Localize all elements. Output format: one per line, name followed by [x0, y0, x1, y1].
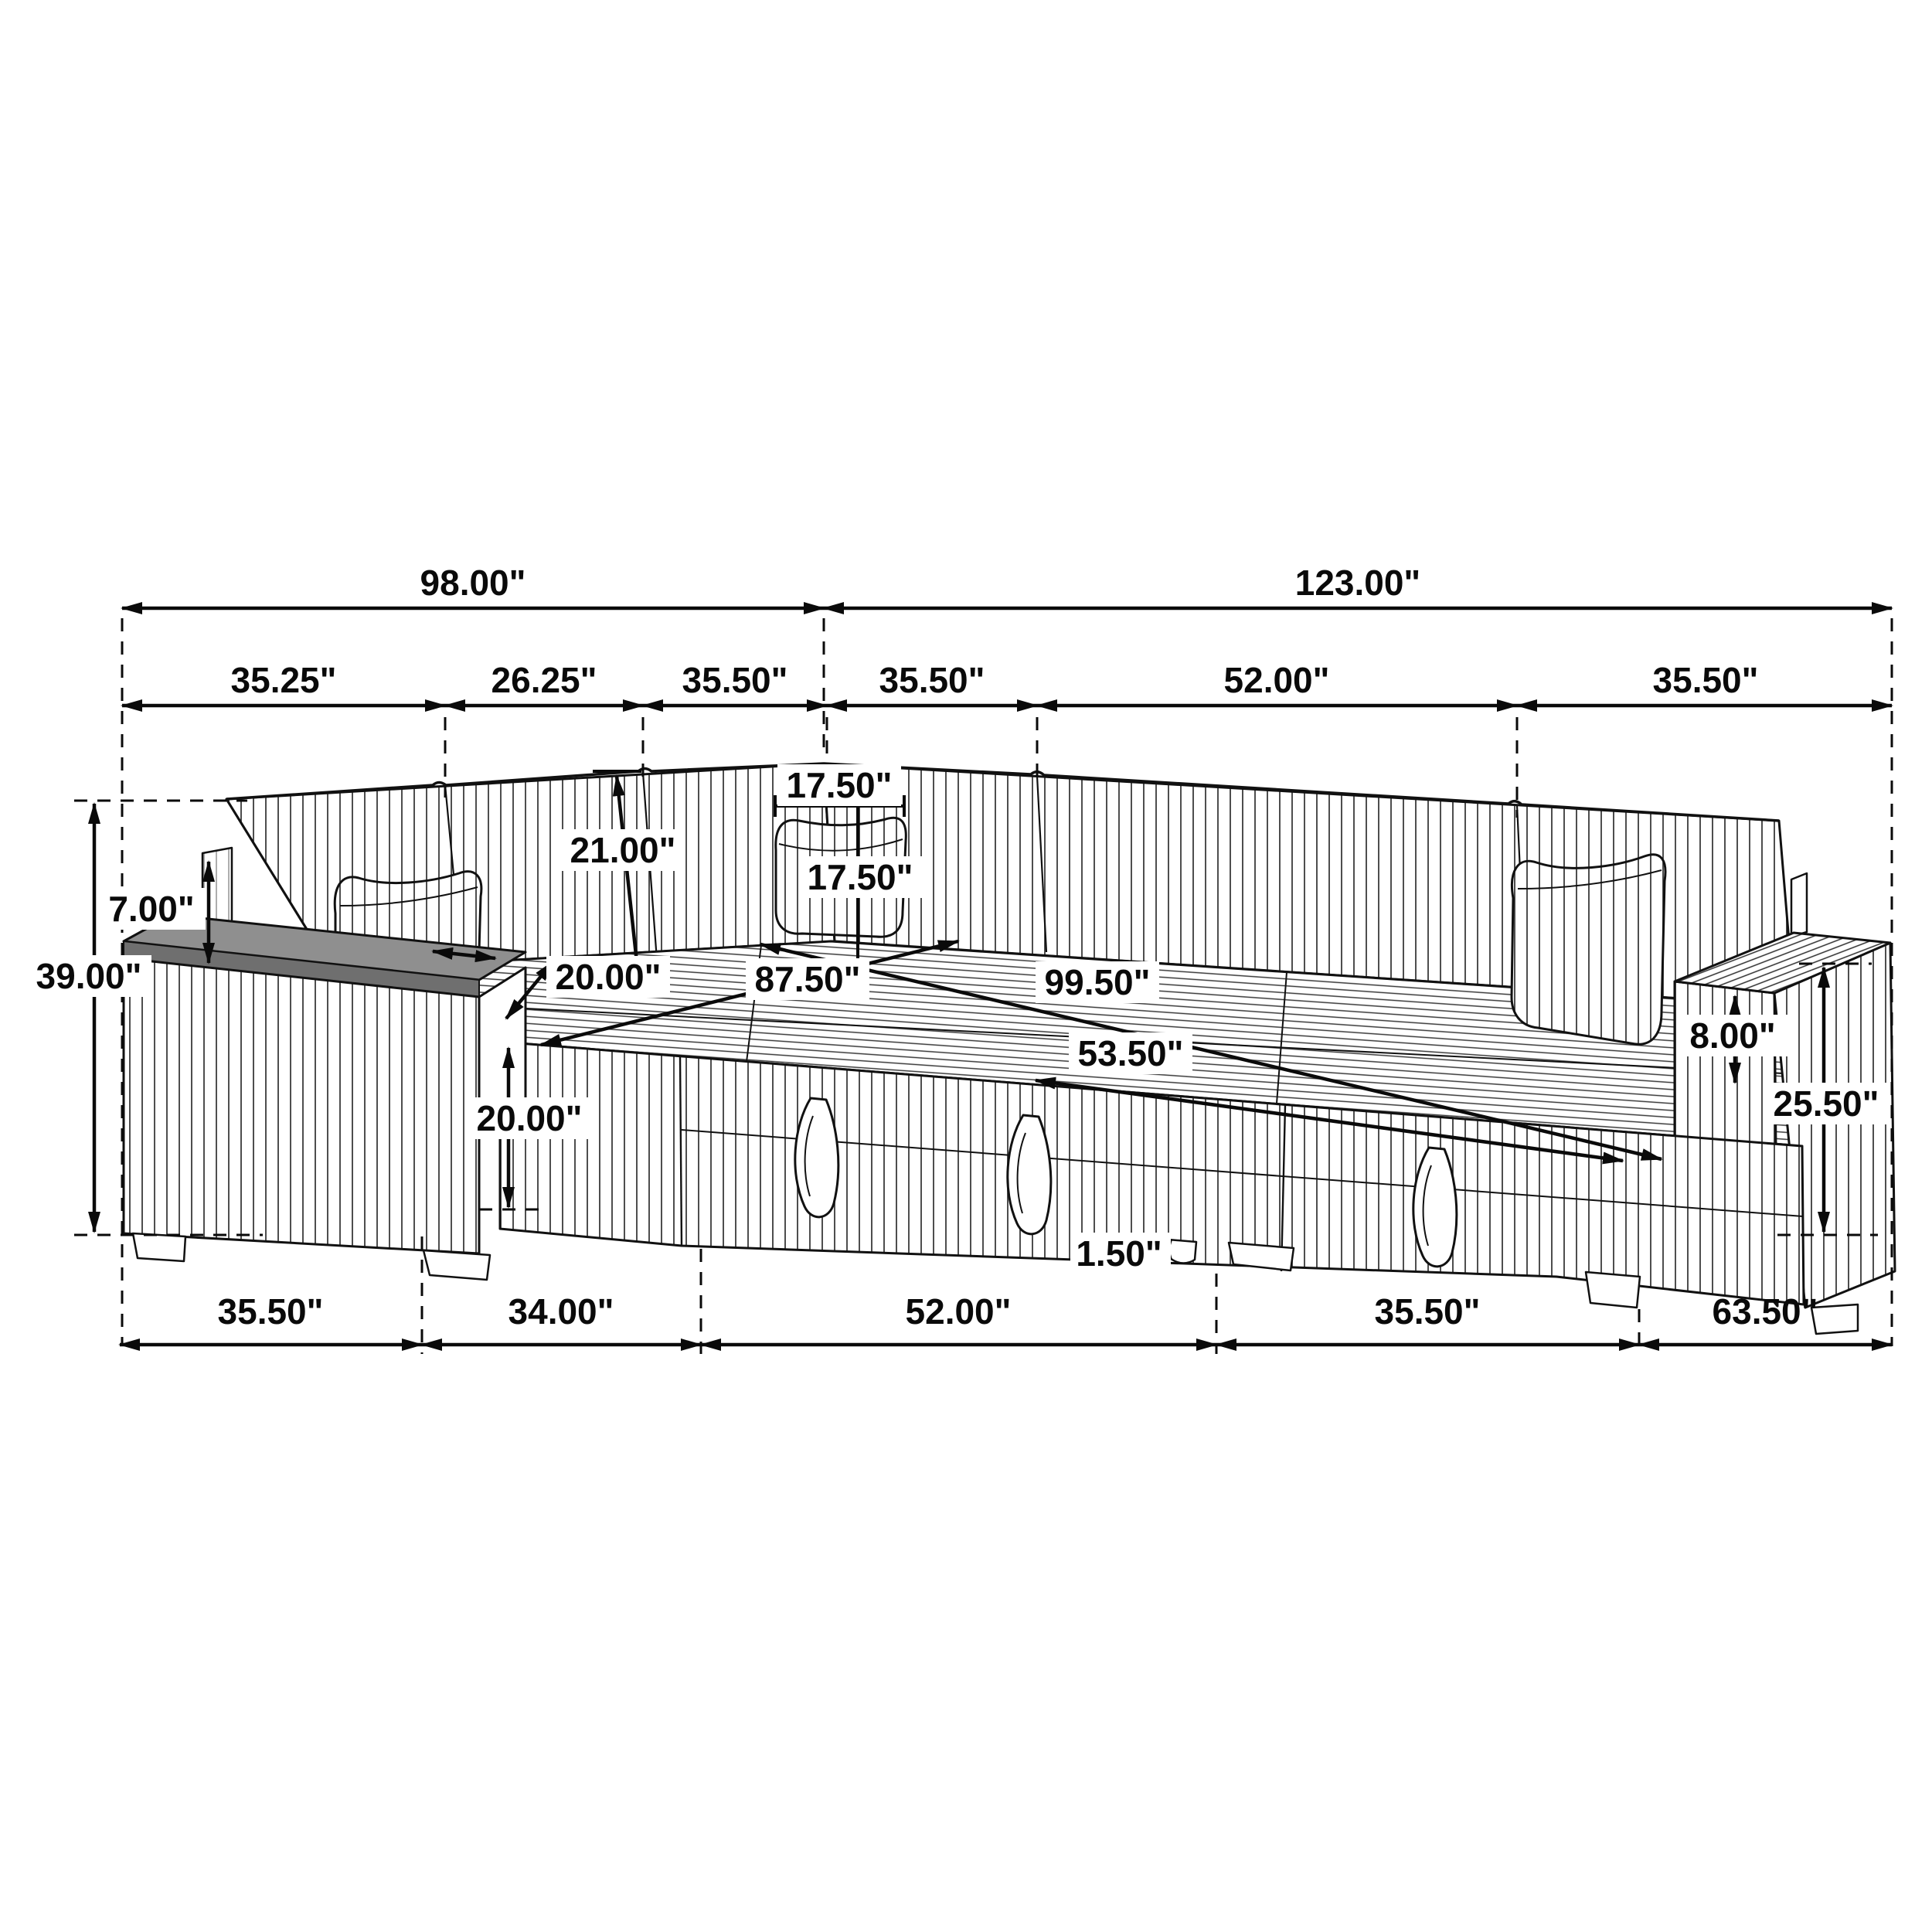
pull-loop-3: [1413, 1148, 1457, 1267]
dim-leg-height: 1.50": [1076, 1233, 1162, 1274]
sofa-dimension-drawing: 98.00" 123.00" 35.25" 26.25" 35.50" 35.5…: [0, 0, 1932, 1932]
left-arm-console: [124, 915, 526, 1280]
dim-upper-seg-5: 52.00": [1224, 660, 1330, 700]
right-arm-foot: [1811, 1304, 1858, 1334]
dim-bottom-seg-2: 34.00": [509, 1291, 614, 1332]
dim-bed-depth: 87.50": [755, 959, 861, 999]
dim-back-above-arm: 7.00": [108, 889, 194, 929]
dim-upper-seg-4: 35.50": [879, 660, 985, 700]
dim-pillow-width: 17.50": [787, 765, 893, 805]
dim-overall-left-width: 98.00": [420, 563, 526, 603]
dim-bed-width: 53.50": [1078, 1033, 1184, 1073]
right-pillow: [1512, 855, 1665, 1044]
dim-bottom-seg-5: 63.50": [1713, 1291, 1818, 1332]
dim-upper-seg-2: 26.25": [492, 660, 597, 700]
right-module-foot: [1586, 1272, 1640, 1308]
left-back-end-post: [202, 848, 232, 926]
dim-overall-height: 39.00": [36, 956, 142, 996]
pull-loop-1: [795, 1098, 838, 1217]
sofa-line-art: [124, 764, 1895, 1334]
dim-bottom-seg-3: 52.00": [906, 1291, 1012, 1332]
dim-upper-seg-1: 35.25": [231, 660, 337, 700]
left-arm-foot-b: [423, 1250, 490, 1280]
dim-seat-depth: 20.00": [556, 957, 662, 997]
dimension-diagram-page: 98.00" 123.00" 35.25" 26.25" 35.50" 35.5…: [0, 0, 1932, 1932]
right-back-end-post: [1791, 873, 1807, 937]
dim-seat-to-arm-top: 8.00": [1689, 1015, 1775, 1056]
dim-bottom-seg-1: 35.50": [218, 1291, 324, 1332]
dim-bottom-seg-4: 35.50": [1375, 1291, 1481, 1332]
dim-front-seat-height: 20.00": [477, 1098, 583, 1138]
dim-overall-right-width: 123.00": [1295, 563, 1421, 603]
dim-upper-seg-3: 35.50": [682, 660, 788, 700]
dim-pillow-height: 17.50": [808, 857, 913, 897]
dim-upper-seg-6: 35.50": [1653, 660, 1759, 700]
dim-back-cushion-height: 21.00": [570, 830, 676, 870]
bed-small-leg: [1168, 1240, 1196, 1264]
left-arm-foot-a: [133, 1233, 185, 1261]
pull-loop-2: [1008, 1115, 1051, 1234]
dim-bed-length: 99.50": [1045, 962, 1151, 1002]
dim-arm-height: 25.50": [1774, 1083, 1879, 1124]
